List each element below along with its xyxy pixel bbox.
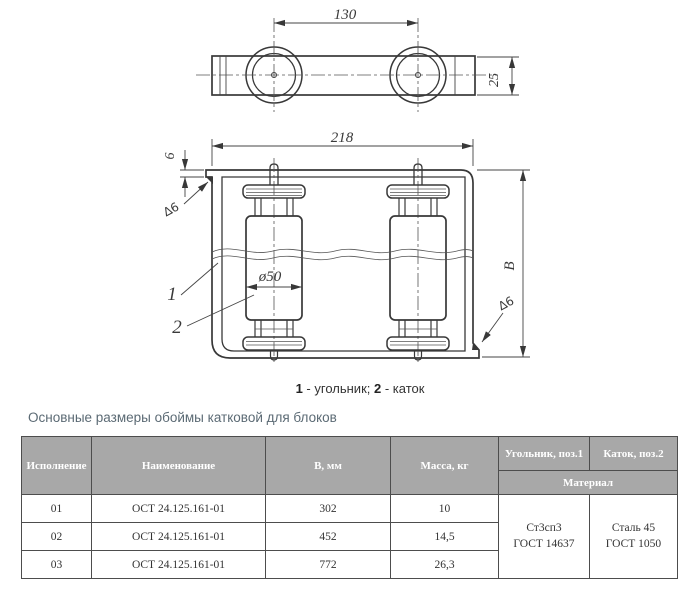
label-1: 1 [167, 284, 177, 305]
header-b-mm: В, мм [266, 437, 391, 495]
weld-symbol-top-left: ∆6 [160, 182, 208, 220]
dim-roller-diameter: ø50 [246, 269, 302, 287]
material-angle-steel: Ст3сп3 [526, 522, 561, 534]
dim-bar-height: 25 [477, 57, 519, 95]
weld-bottom-label: ∆6 [495, 294, 516, 314]
break-line-lower [212, 256, 473, 260]
dim-218-label: 218 [331, 130, 354, 146]
cell-mass: 26,3 [391, 551, 499, 579]
cell-name: ОСТ 24.125.161-01 [92, 495, 266, 523]
material-roller-gost: ГОСТ 1050 [606, 538, 661, 550]
cell-name: ОСТ 24.125.161-01 [92, 523, 266, 551]
caption-text-2: - каток [381, 381, 424, 396]
material-angle-gost: ГОСТ 14637 [513, 538, 574, 550]
dim-frame-width: 218 [212, 130, 473, 166]
cell-version: 03 [22, 551, 92, 579]
dim-o50-label: ø50 [258, 269, 282, 285]
cell-b: 302 [266, 495, 391, 523]
header-material: Материал [499, 471, 678, 495]
label-2: 2 [172, 317, 182, 338]
caption-num-1: 1 [296, 381, 303, 396]
part-label-1: 1 [167, 263, 218, 305]
weld-symbol-bottom-right: ∆6 [482, 294, 516, 342]
cell-version: 02 [22, 523, 92, 551]
cell-name: ОСТ 24.125.161-01 [92, 551, 266, 579]
header-version: Исполнение [22, 437, 92, 495]
dim-plate-thickness: 6 [163, 150, 204, 197]
top-view: 130 25 [196, 7, 519, 112]
cell-material-roller: Сталь 45ГОСТ 1050 [590, 495, 678, 579]
break-line-upper [212, 249, 473, 253]
caption-text-1: - угольник; [303, 381, 374, 396]
material-roller-steel: Сталь 45 [612, 522, 655, 534]
cell-mass: 14,5 [391, 523, 499, 551]
weld-top-label: ∆6 [160, 200, 181, 220]
header-name: Наименование [92, 437, 266, 495]
drawing-caption: 1 - угольник; 2 - каток [0, 381, 700, 396]
front-view: 218 6 ∆6 ∆6 [160, 130, 530, 363]
section-title: Основные размеры обоймы катковой для бло… [28, 410, 337, 425]
dim-130-label: 130 [334, 7, 357, 23]
spec-table: Исполнение Наименование В, мм Масса, кг … [21, 436, 678, 579]
cell-material-angle: Ст3сп3ГОСТ 14637 [499, 495, 590, 579]
header-angle-pos1: Угольник, поз.1 [499, 437, 590, 471]
part-label-2: 2 [172, 295, 254, 338]
weld-fillet-bottom-right [472, 343, 479, 350]
header-mass-kg: Масса, кг [391, 437, 499, 495]
dim-b-label: B [502, 261, 518, 270]
header-roller-pos2: Каток, поз.2 [590, 437, 678, 471]
frame-inner-contour [222, 177, 465, 351]
dim-25-label: 25 [487, 73, 502, 87]
dim-6-label: 6 [163, 153, 178, 160]
technical-drawing: 130 25 [0, 0, 700, 405]
dim-frame-height: B [477, 170, 530, 357]
cell-b: 452 [266, 523, 391, 551]
table-row: 01 ОСТ 24.125.161-01 302 10 Ст3сп3ГОСТ 1… [22, 495, 678, 523]
document-page: 130 25 [0, 0, 700, 590]
dim-roller-spacing: 130 [274, 7, 418, 23]
cell-version: 01 [22, 495, 92, 523]
cell-mass: 10 [391, 495, 499, 523]
cell-b: 772 [266, 551, 391, 579]
